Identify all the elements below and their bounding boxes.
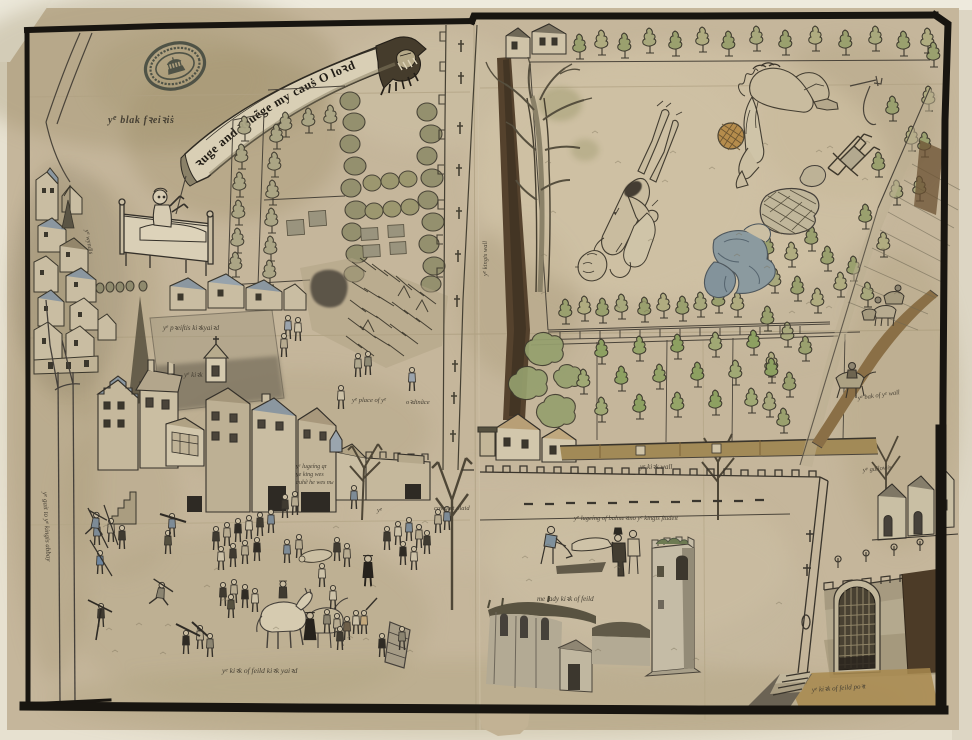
svg-text:quhẽ he wes md: quhẽ he wes md (296, 480, 334, 486)
svg-text:ye kiꝛk of feild kiꝛk yaiꝛd: ye kiꝛk of feild kiꝛk yaiꝛd (221, 666, 298, 675)
svg-text:ye king wes: ye king wes (295, 472, 324, 478)
svg-text:ye blak fꝛeiꝛiṡ: ye blak fꝛeiꝛiṡ (107, 113, 174, 126)
svg-text:me lady kiꝛk of feild: me lady kiꝛk of feild (537, 595, 594, 603)
svg-text:ye kingis wall: ye kingis wall (482, 241, 489, 277)
svg-text:cowgait plaid: cowgait plaid (434, 505, 470, 512)
svg-text:oꝛdinãce: oꝛdinãce (406, 399, 430, 406)
svg-text:ye place of ye: ye place of ye (351, 397, 387, 404)
svg-text:ye lugeíng of balmeꝛino ye kin: ye lugeíng of balmeꝛino ye kingis ſtudei… (573, 515, 678, 522)
svg-text:ye kiꝛk: ye kiꝛk (183, 371, 203, 379)
svg-text:ye lugeíng qr: ye lugeíng qr (295, 463, 327, 471)
svg-text:ye pꝛeiſtis kiꝛkyaiꝛd: ye pꝛeiſtis kiꝛkyaiꝛd (162, 324, 220, 332)
